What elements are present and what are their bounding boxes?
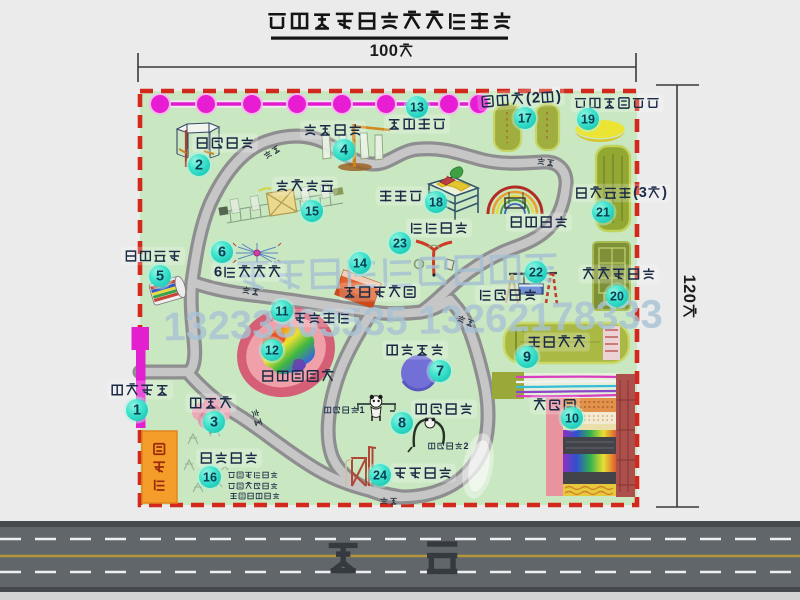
svg-text:3: 3 (440, 298, 463, 343)
svg-text:0: 0 (680, 294, 698, 303)
svg-text:1: 1 (163, 305, 186, 350)
svg-text:23: 23 (393, 237, 407, 251)
svg-text:19: 19 (581, 113, 595, 127)
svg-text:1: 1 (680, 275, 698, 284)
svg-text:7: 7 (436, 364, 444, 380)
svg-text:0: 0 (389, 42, 398, 60)
svg-text:21: 21 (596, 206, 610, 220)
svg-text:16: 16 (203, 471, 217, 485)
svg-text:5: 5 (385, 299, 408, 344)
svg-text:6: 6 (218, 245, 226, 261)
svg-text:2: 2 (207, 304, 230, 349)
svg-text:9: 9 (523, 350, 531, 366)
svg-text:24: 24 (373, 469, 387, 483)
svg-text:6: 6 (214, 264, 222, 281)
svg-text:1: 1 (370, 42, 379, 60)
svg-text:1: 1 (418, 298, 441, 343)
svg-text:2: 2 (195, 158, 203, 174)
svg-text:1: 1 (133, 403, 141, 419)
svg-text:15: 15 (305, 205, 319, 219)
svg-text:3: 3 (229, 303, 252, 348)
svg-text:13: 13 (410, 101, 424, 115)
svg-text:): ) (662, 185, 667, 201)
svg-text:2: 2 (531, 89, 541, 107)
svg-text:2: 2 (680, 284, 698, 293)
svg-text:0: 0 (379, 42, 388, 60)
svg-text:3: 3 (639, 185, 647, 201)
svg-text:18: 18 (429, 196, 443, 210)
svg-text:1: 1 (359, 405, 364, 415)
svg-text:3: 3 (640, 292, 663, 337)
svg-text:8: 8 (398, 416, 406, 432)
svg-text:3: 3 (363, 300, 386, 345)
svg-text:17: 17 (518, 112, 532, 126)
svg-text:12: 12 (265, 344, 279, 358)
svg-text:8: 8 (573, 294, 596, 339)
svg-text:11: 11 (275, 305, 288, 319)
svg-text:(: ( (633, 185, 638, 201)
svg-text:2: 2 (463, 441, 468, 451)
svg-text:10: 10 (565, 412, 579, 426)
svg-text:20: 20 (610, 290, 624, 304)
svg-text:4: 4 (340, 143, 348, 159)
svg-text:3: 3 (210, 415, 218, 431)
svg-text:22: 22 (529, 266, 543, 280)
svg-text:14: 14 (353, 257, 367, 271)
svg-text:3: 3 (185, 304, 208, 349)
svg-text:5: 5 (156, 269, 164, 285)
